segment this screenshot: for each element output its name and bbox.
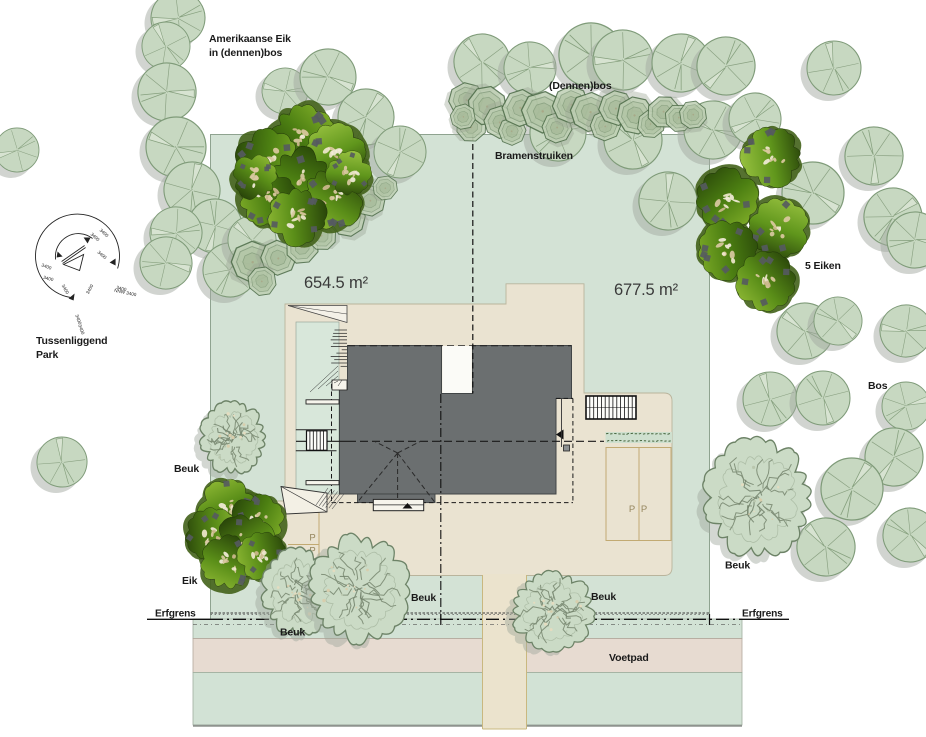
svg-text:(Dennen)bos: (Dennen)bos (549, 80, 612, 92)
svg-text:3400: 3400 (61, 284, 71, 296)
svg-text:3400: 3400 (85, 283, 95, 295)
svg-text:5 Eiken: 5 Eiken (805, 260, 841, 272)
svg-text:3400: 3400 (96, 250, 107, 261)
svg-text:NNW 3400: NNW 3400 (114, 288, 137, 298)
svg-text:Voetpad: Voetpad (609, 652, 649, 664)
svg-text:Beuk: Beuk (411, 592, 436, 604)
svg-text:Tussenliggend: Tussenliggend (36, 335, 107, 347)
svg-text:Bos: Bos (868, 380, 888, 392)
svg-text:Erfgrens: Erfgrens (742, 609, 783, 620)
svg-text:Amerikaanse Eik: Amerikaanse Eik (209, 33, 291, 45)
svg-text:677.5 m²: 677.5 m² (614, 281, 679, 299)
svg-text:3400: 3400 (77, 324, 85, 336)
svg-text:P: P (641, 504, 647, 515)
svg-text:Erfgrens: Erfgrens (155, 609, 196, 620)
svg-text:Eik: Eik (182, 575, 198, 587)
svg-text:Beuk: Beuk (725, 560, 750, 572)
svg-text:654.5 m²: 654.5 m² (304, 274, 369, 292)
svg-text:3400: 3400 (41, 262, 53, 270)
svg-text:P: P (629, 504, 635, 515)
svg-text:3400: 3400 (43, 275, 55, 283)
svg-text:in (dennen)bos: in (dennen)bos (209, 47, 282, 59)
svg-text:Beuk: Beuk (174, 463, 199, 475)
svg-text:Beuk: Beuk (280, 627, 305, 639)
svg-text:3400: 3400 (99, 228, 110, 239)
svg-text:Park: Park (36, 349, 58, 361)
svg-text:P: P (309, 533, 315, 544)
svg-text:3400: 3400 (74, 314, 82, 326)
svg-text:Beuk: Beuk (591, 591, 616, 603)
svg-text:Bramenstruiken: Bramenstruiken (495, 150, 573, 162)
